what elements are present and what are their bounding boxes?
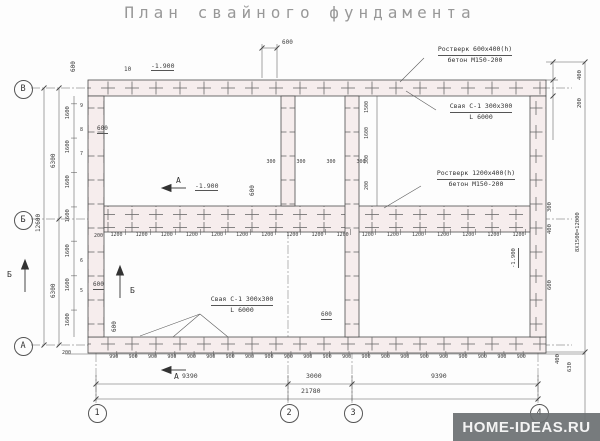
dim-label: 1200 bbox=[104, 233, 129, 240]
dim-label: 400 bbox=[556, 354, 562, 364]
plan-linework bbox=[0, 0, 600, 441]
annotation-rostverk-top: Ростверк 600х400(h) бетон М150-200 bbox=[414, 45, 536, 65]
dim-label: 900 bbox=[240, 355, 259, 362]
dim-label: 1600 bbox=[64, 268, 73, 302]
pile-number: 6 bbox=[78, 246, 85, 276]
dim-label: 900 bbox=[201, 355, 220, 362]
dim-label: 900 bbox=[337, 355, 356, 362]
dim-label: 900 bbox=[317, 355, 336, 362]
dim-label: 300 bbox=[316, 160, 346, 167]
dim-label: 1200 bbox=[255, 233, 280, 240]
dim-label: 900 bbox=[356, 355, 375, 362]
pile-count-label: 10 bbox=[124, 67, 131, 73]
axis-bubble-b: Б bbox=[14, 211, 33, 230]
dim-label: 1500 bbox=[363, 94, 372, 120]
dim-label: 300 bbox=[363, 146, 372, 172]
dim-label: 200 bbox=[363, 172, 372, 198]
dim-label: 600 bbox=[112, 321, 118, 332]
dim-label: 900 bbox=[143, 355, 162, 362]
dim-label: 900 bbox=[123, 355, 142, 362]
dim-label: 900 bbox=[473, 355, 492, 362]
annotation-line: бетон М150-200 bbox=[449, 180, 504, 188]
annotation-pile-right: Свая С-1 300х300 L 6000 bbox=[428, 102, 534, 122]
dim-label: 1200 bbox=[154, 233, 179, 240]
dim-label: 600 bbox=[93, 282, 104, 290]
foundation-plan-drawing: План свайного фундамента В Б А 1 2 3 4 Р… bbox=[0, 0, 600, 441]
dim-label: 900 bbox=[434, 355, 453, 362]
annotation-rostverk-mid: Ростверк 1200х400(h) бетон М150-200 bbox=[414, 169, 538, 189]
dim-total-width: 21780 bbox=[301, 388, 321, 395]
annotation-line: Свая С-1 300х300 bbox=[211, 295, 274, 306]
watermark: HOME-IDEAS.RU bbox=[453, 413, 600, 441]
dim-label: 600 bbox=[321, 312, 332, 320]
section-label-a: А bbox=[176, 177, 181, 185]
dim-row-1200: 1200120012001200120012001200120012001200… bbox=[104, 233, 531, 240]
elevation-mark: -1.900 bbox=[195, 183, 218, 191]
pile-number: 8 bbox=[78, 118, 85, 142]
dim-label: 900 bbox=[162, 355, 181, 362]
axis-bubble-a: А bbox=[14, 337, 33, 356]
dim-label: 1600 bbox=[64, 234, 73, 268]
dim-label: 900 bbox=[492, 355, 511, 362]
dim-label: 1200 bbox=[506, 233, 531, 240]
dim-label: 1200 bbox=[129, 233, 154, 240]
dim-label: 1600 bbox=[64, 165, 73, 199]
annotation-line: Ростверк 1200х400(h) bbox=[437, 169, 515, 180]
pile-numbers-bottom: 65 bbox=[78, 246, 85, 306]
dim-span: 3000 bbox=[306, 373, 322, 380]
dim-label: 1200 bbox=[380, 233, 405, 240]
axis-bubble-v: В bbox=[14, 80, 33, 99]
dim-label: 1200 bbox=[205, 233, 230, 240]
annotation-line: L 6000 bbox=[230, 306, 253, 314]
dim-label: 900 bbox=[512, 355, 531, 362]
annotation-line: L 6000 bbox=[469, 113, 492, 121]
dim-label: 1600 bbox=[64, 96, 73, 130]
dim-label: 300 bbox=[256, 160, 286, 167]
dim-label: 400 bbox=[578, 70, 584, 80]
axis-bubble-3: 3 bbox=[344, 404, 363, 423]
dim-label: 600 bbox=[97, 126, 108, 134]
axis-bubble-1: 1 bbox=[88, 404, 107, 423]
section-label-b: Б bbox=[130, 287, 135, 295]
dim-total-right: 8Х1500=12000 bbox=[576, 212, 582, 252]
dim-label: 900 bbox=[453, 355, 472, 362]
dim-label: 1200 bbox=[230, 233, 255, 240]
dim-label: 1200 bbox=[431, 233, 456, 240]
annotation-pile-bottom: Свая С-1 300х300 L 6000 bbox=[192, 295, 292, 315]
elevation-mark: -1.900 bbox=[151, 63, 174, 71]
elevation-mark: -1.900 bbox=[512, 248, 519, 268]
dim-half: 6300 bbox=[51, 284, 57, 298]
dim-col-1600: 1600160016001600160016001600 bbox=[64, 96, 73, 337]
dim-label: 900 bbox=[220, 355, 239, 362]
dim-label: 600 bbox=[250, 185, 256, 196]
dim-label: 1200 bbox=[406, 233, 431, 240]
dim-label: 900 bbox=[279, 355, 298, 362]
dim-row-300: 300300300300 bbox=[256, 160, 376, 167]
dim-label: 900 bbox=[259, 355, 278, 362]
dim-label: 600 bbox=[71, 61, 77, 72]
dim-span: 9390 bbox=[431, 373, 447, 380]
dim-label: 400 bbox=[548, 224, 554, 234]
dim-label: 1200 bbox=[481, 233, 506, 240]
dim-total-height: 12600 bbox=[36, 214, 42, 232]
axis-bubble-2: 2 bbox=[280, 404, 299, 423]
dim-label: 900 bbox=[415, 355, 434, 362]
dim-label: 1200 bbox=[355, 233, 380, 240]
dim-label: 900 bbox=[182, 355, 201, 362]
annotation-line: Ростверк 600х400(h) bbox=[438, 45, 512, 56]
dim-label: 1200 bbox=[280, 233, 305, 240]
dim-label: 1200 bbox=[330, 233, 355, 240]
dim-label: 900 bbox=[298, 355, 317, 362]
dim-label: 200 bbox=[62, 351, 71, 356]
dim-label: 990 bbox=[104, 355, 123, 362]
dim-label: 200 bbox=[578, 98, 584, 108]
dim-label: 1600 bbox=[64, 303, 73, 337]
dim-label: 1200 bbox=[456, 233, 481, 240]
dim-label: 630 bbox=[568, 362, 574, 372]
dim-row-900: 9909009009009009009009009009009009009009… bbox=[104, 355, 531, 362]
drawing-title: План свайного фундамента bbox=[0, 3, 600, 22]
pile-number: 7 bbox=[78, 142, 85, 166]
dim-label: 300 bbox=[286, 160, 316, 167]
annotation-line: Свая С-1 300х300 bbox=[450, 102, 513, 113]
dim-label: 300 bbox=[548, 202, 554, 212]
dim-half: 6300 bbox=[51, 154, 57, 168]
dim-label: 200 bbox=[94, 234, 103, 239]
dim-label: 1600 bbox=[64, 130, 73, 164]
dim-span: 9390 bbox=[182, 373, 198, 380]
section-label-b: Б bbox=[7, 271, 12, 279]
dim-label: 600 bbox=[282, 40, 293, 46]
pile-number: 9 bbox=[78, 94, 85, 118]
dim-label: 900 bbox=[376, 355, 395, 362]
dim-label: 1600 bbox=[64, 199, 73, 233]
section-label-a: А bbox=[174, 373, 179, 381]
dim-label: 1200 bbox=[179, 233, 204, 240]
dim-label: 1600 bbox=[363, 120, 372, 146]
annotation-line: бетон М150-200 bbox=[448, 56, 503, 64]
dim-label: 900 bbox=[395, 355, 414, 362]
pile-numbers-top: 987 bbox=[78, 94, 85, 166]
pile-number: 5 bbox=[78, 276, 85, 306]
dim-label: 1200 bbox=[305, 233, 330, 240]
dim-label: 600 bbox=[548, 280, 554, 290]
dim-col-wall2: 15001600300200 bbox=[363, 94, 372, 198]
